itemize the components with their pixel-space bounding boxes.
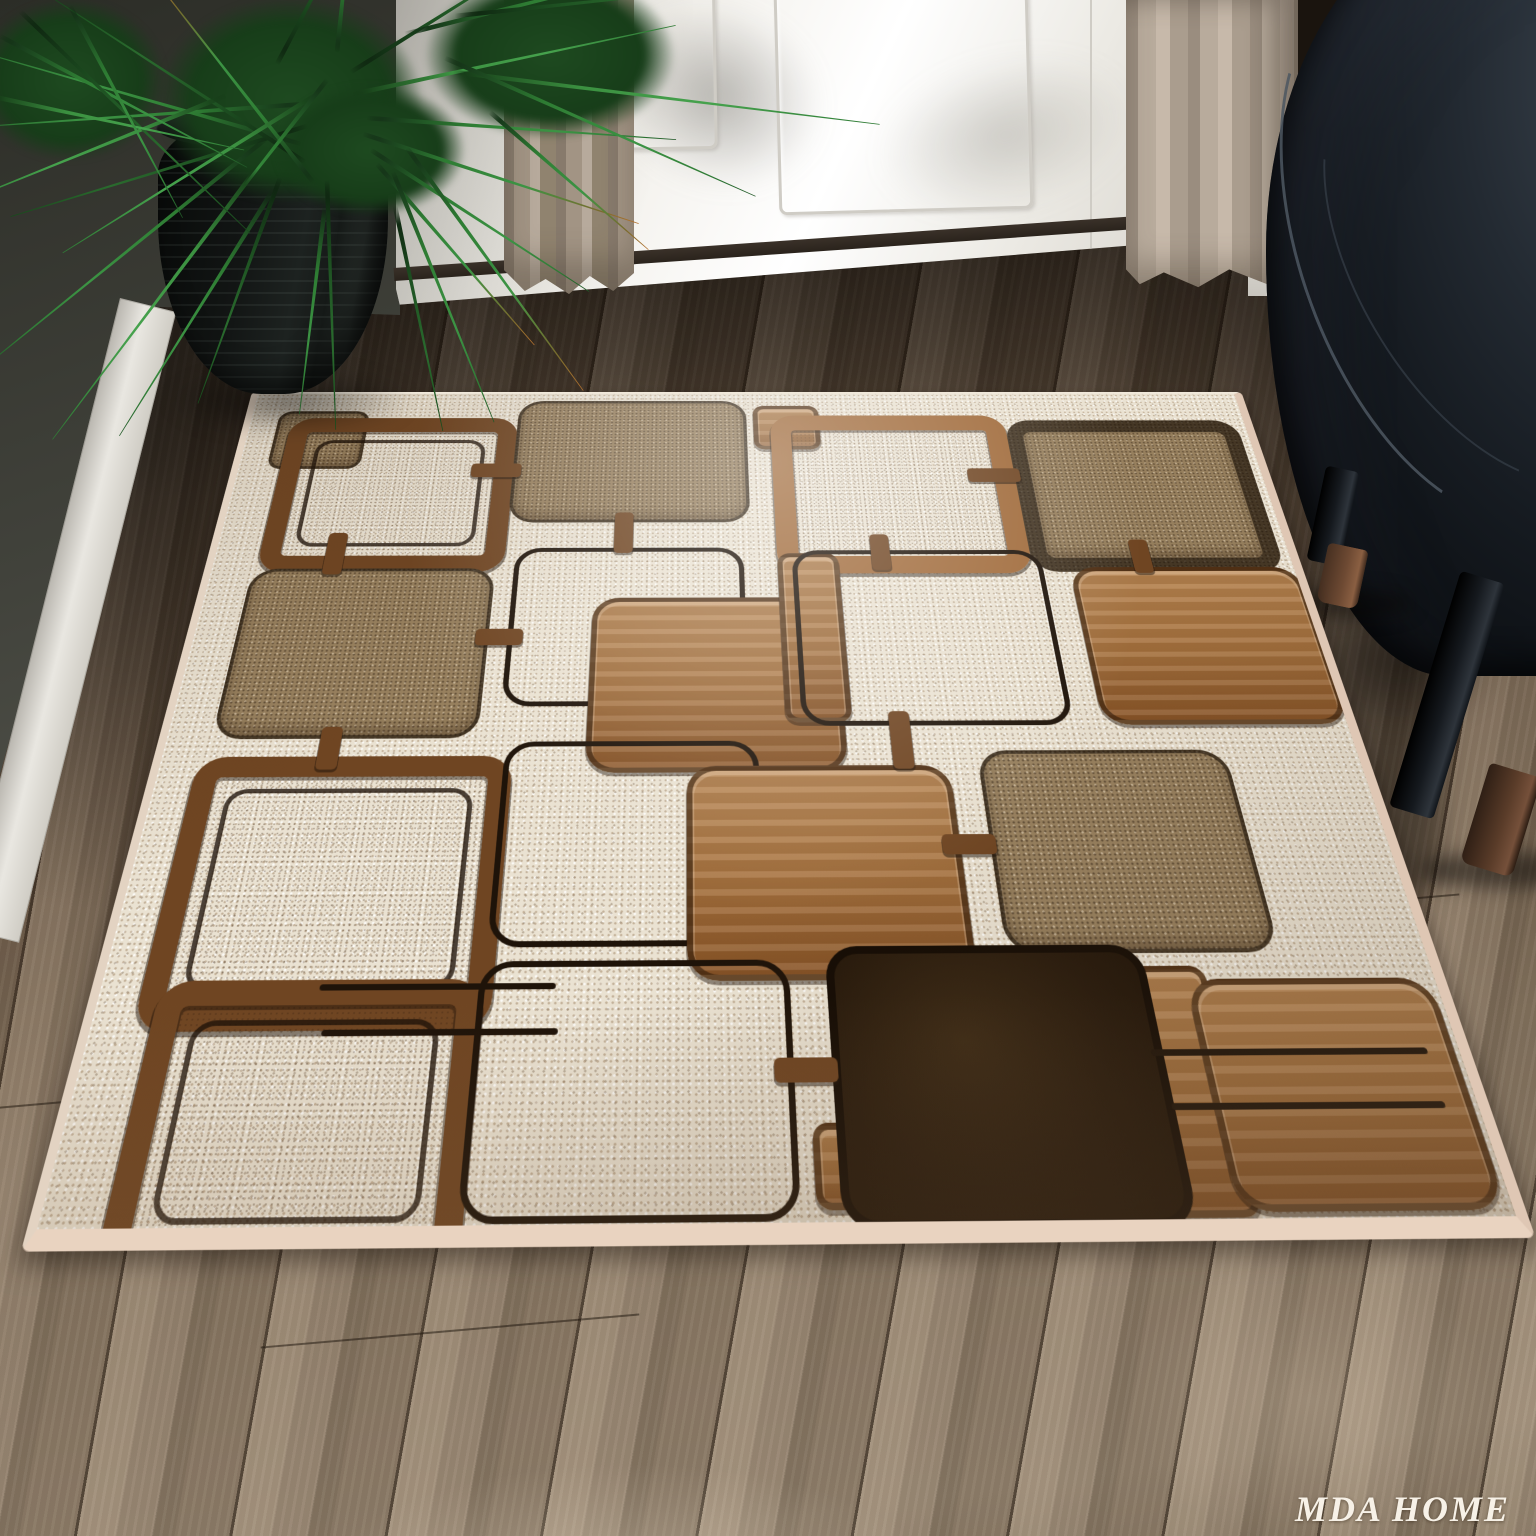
brand-watermark: MDA HOME — [1295, 1488, 1510, 1530]
rug-square — [791, 550, 1074, 726]
rug-inner-line — [294, 440, 487, 547]
rug-square — [457, 959, 802, 1224]
rug-connector — [474, 629, 523, 646]
rug-square — [211, 568, 495, 739]
rug-connector — [470, 464, 522, 478]
rug-inner-line — [181, 788, 474, 992]
rug-square — [1069, 567, 1351, 725]
foliage-cluster — [240, 60, 500, 240]
rug-connector — [774, 1057, 839, 1082]
rug-connector — [614, 512, 634, 552]
rug-inner-line — [148, 1019, 441, 1225]
rug-square — [976, 750, 1280, 954]
rug-connector — [941, 834, 998, 854]
door-panel — [773, 0, 1034, 215]
rug-connector — [967, 468, 1022, 482]
rug-square — [824, 944, 1200, 1231]
rug-square — [508, 401, 751, 523]
rug-connector — [869, 534, 892, 570]
room-scene: MDA HOME — [0, 0, 1536, 1536]
